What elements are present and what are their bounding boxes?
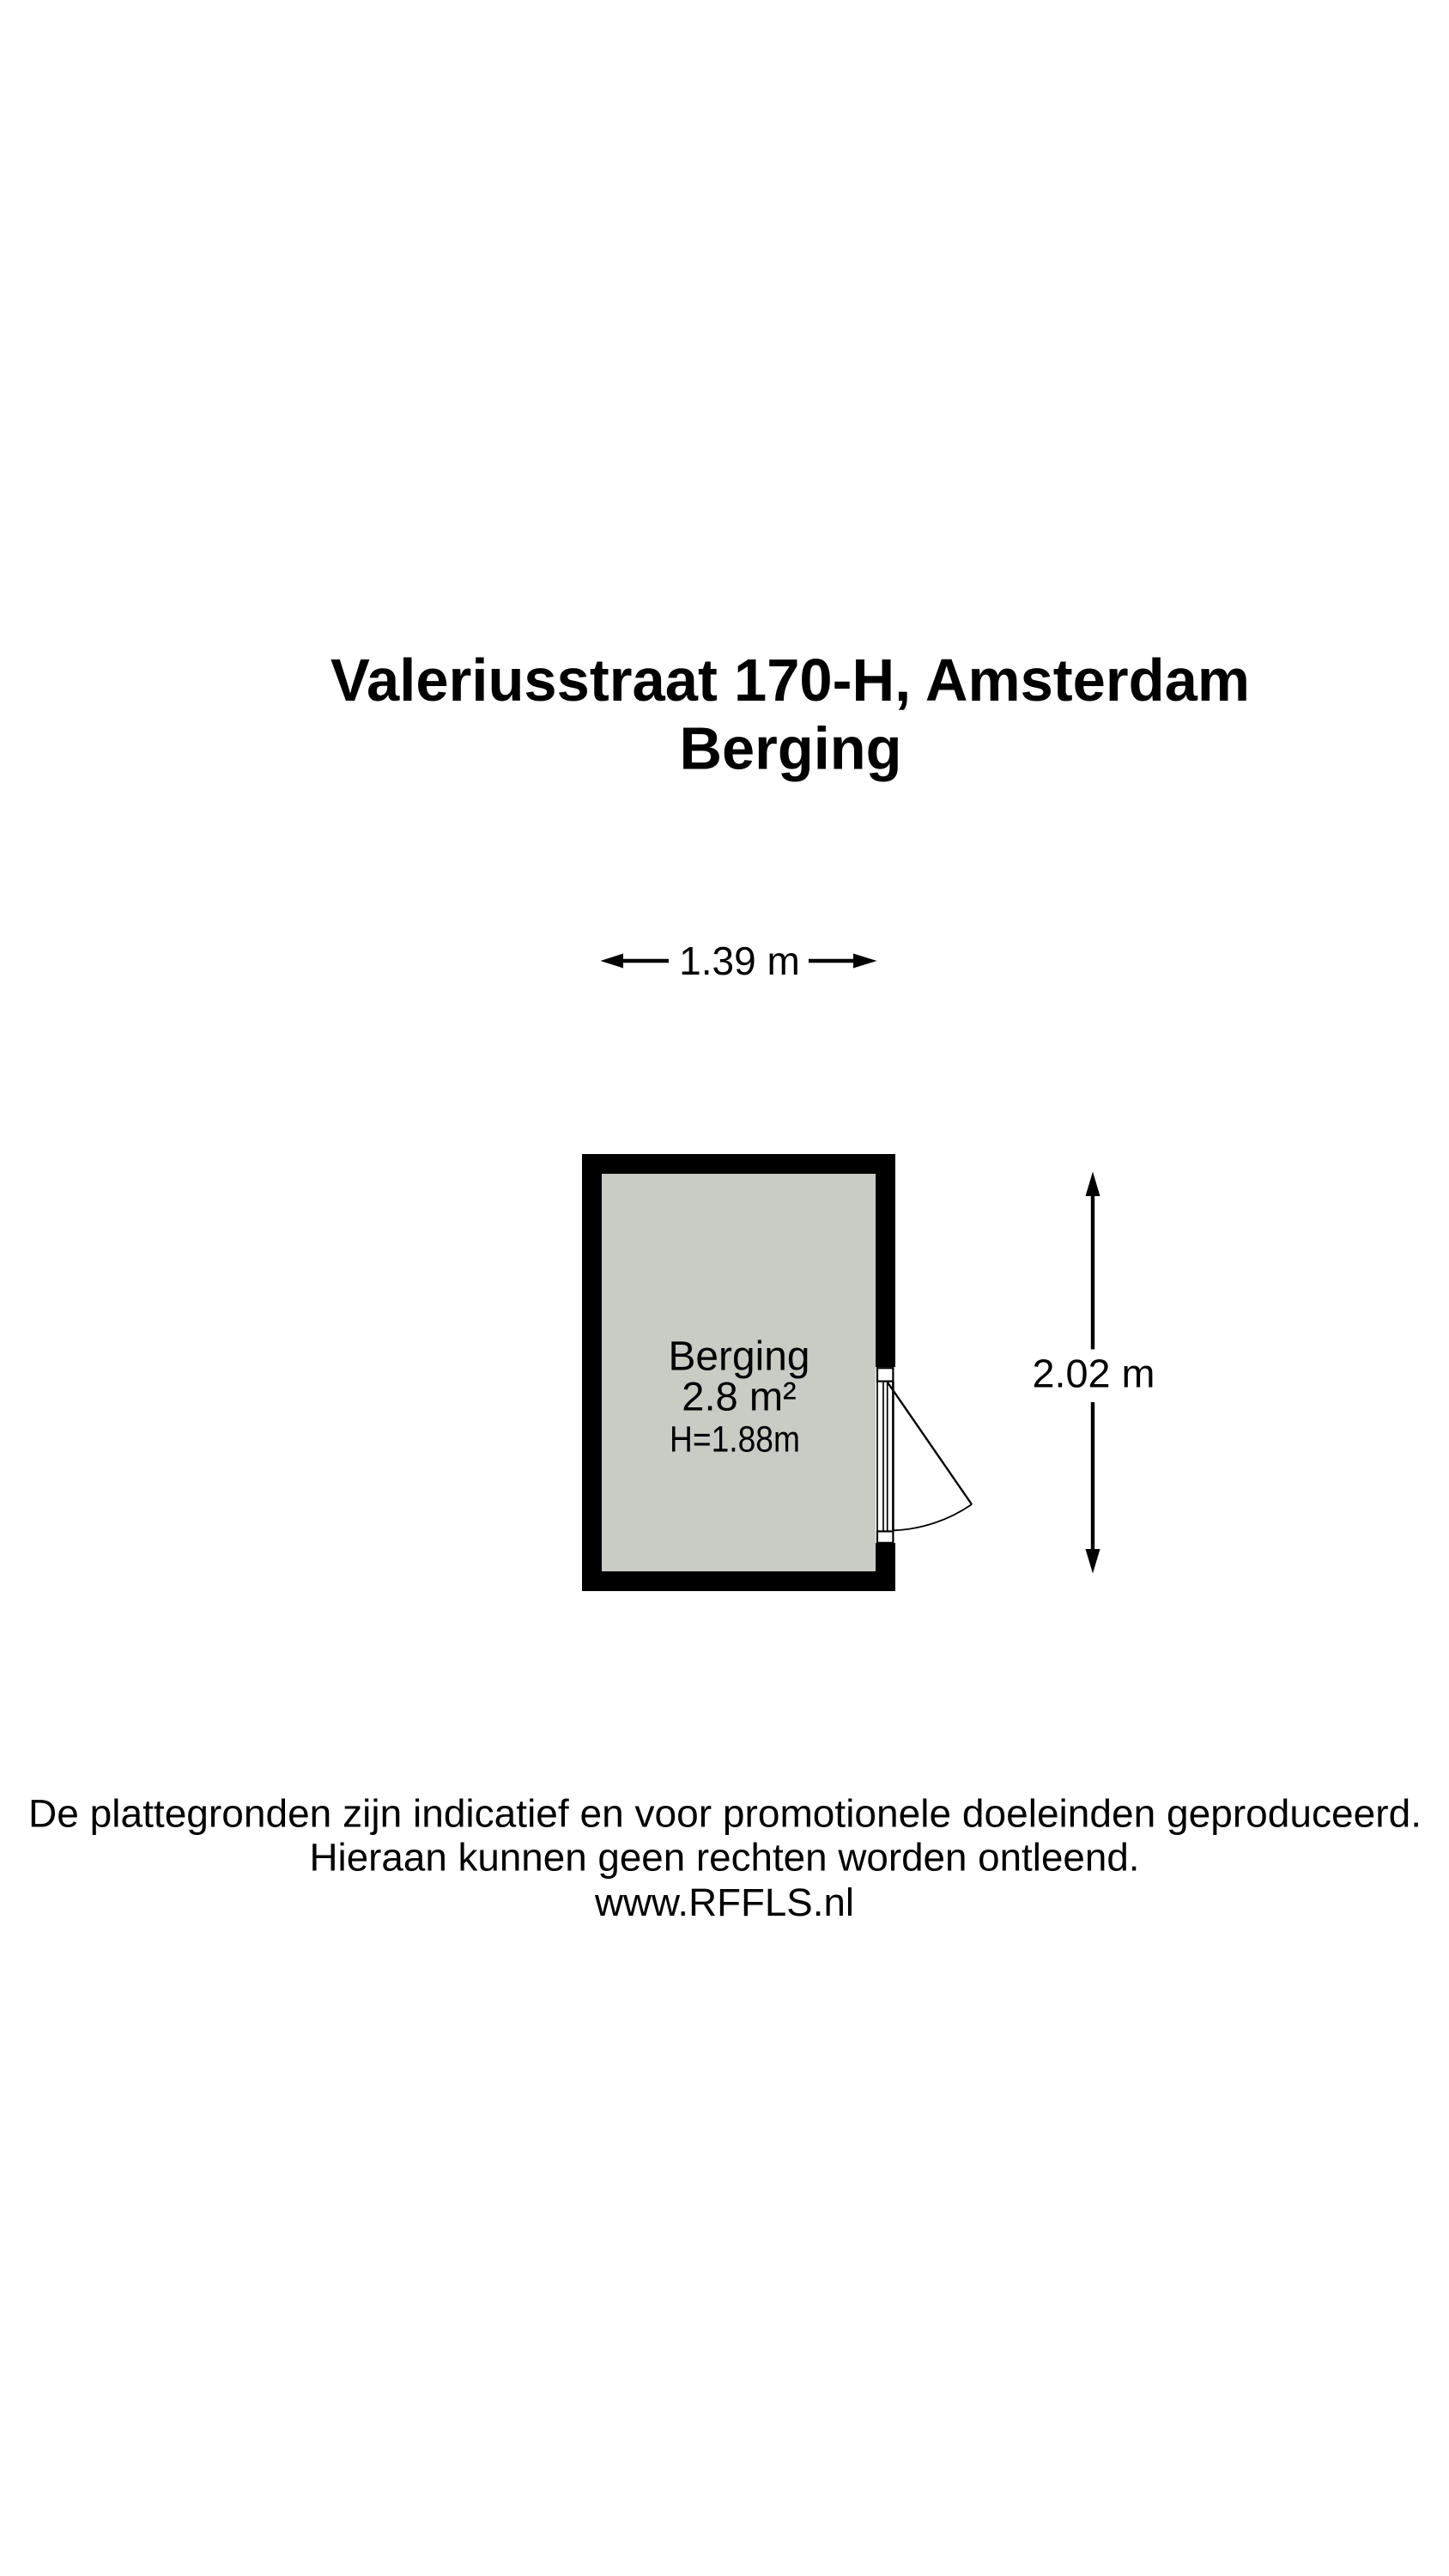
svg-text:2.8 m²: 2.8 m² [682, 1374, 797, 1419]
svg-text:De plattegronden zijn indicati: De plattegronden zijn indicatief en voor… [28, 1792, 1422, 1836]
svg-text:1.39 m: 1.39 m [679, 939, 800, 983]
svg-text:Berging: Berging [669, 1334, 810, 1380]
svg-text:2.02 m: 2.02 m [1033, 1352, 1155, 1396]
svg-text:H=1.88m: H=1.88m [670, 1419, 800, 1461]
svg-text:Hieraan kunnen geen rechten wo: Hieraan kunnen geen rechten worden ontle… [310, 1836, 1140, 1880]
svg-text:www.RFFLS.nl: www.RFFLS.nl [594, 1880, 854, 1924]
svg-text:Berging: Berging [680, 715, 902, 782]
svg-text:Valeriusstraat 170-H, Amsterda: Valeriusstraat 170-H, Amsterdam [330, 647, 1250, 714]
